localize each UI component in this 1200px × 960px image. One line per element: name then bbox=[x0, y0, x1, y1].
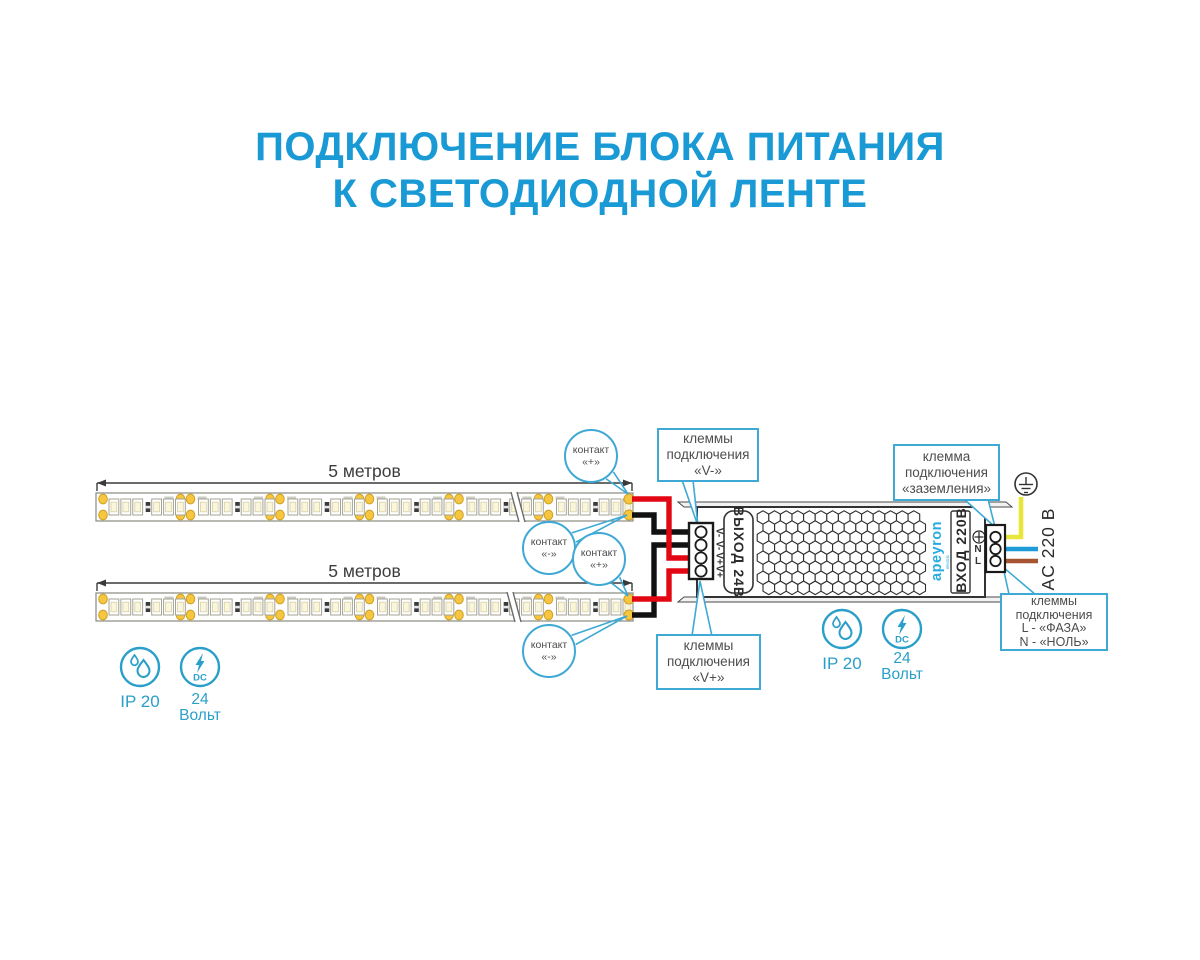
page-title-line1: ПОДКЛЮЧЕНИЕ БЛОКА ПИТАНИЯ bbox=[0, 124, 1200, 171]
led-strip-top bbox=[96, 492, 634, 522]
water-drops-icon bbox=[820, 607, 864, 651]
output-terminal-label-4: V+ bbox=[714, 559, 725, 583]
psu-output-terminals bbox=[689, 523, 713, 579]
callout-line: L - «ФАЗА» bbox=[1002, 622, 1106, 636]
callout-line: N - «НОЛЬ» bbox=[1002, 636, 1106, 650]
callout-line: подключения bbox=[1002, 609, 1106, 623]
contact-callout-text: контакт bbox=[566, 444, 616, 457]
contact-callout-sign: «-» bbox=[524, 651, 574, 664]
callout-line: подключения bbox=[659, 447, 757, 463]
water-drops-icon bbox=[118, 645, 162, 689]
dc-lightning-icon: DC bbox=[880, 607, 924, 651]
ground-callout: клемма подключения «заземления» bbox=[893, 444, 1000, 501]
psu-input-terminals bbox=[986, 525, 1005, 572]
vplus-callout: клеммы подключения «V+» bbox=[656, 634, 761, 690]
psu-output-label: ВЫХОД 24В bbox=[730, 497, 748, 607]
vminus-callout: клеммы подключения «V-» bbox=[657, 428, 759, 482]
contact-callout-minus-bottom: контакт «-» bbox=[522, 624, 576, 678]
dc24-label-psu-2: Вольт bbox=[874, 667, 930, 683]
contact-callout-plus-top: контакт «+» bbox=[564, 429, 618, 483]
brand-logo: apeyron bbox=[929, 506, 945, 596]
callout-line: подключения bbox=[658, 654, 759, 670]
contact-callout-sign: «+» bbox=[566, 456, 616, 469]
ac-voltage-label: AC 220 В bbox=[1038, 499, 1058, 599]
input-terminal-label-l: L bbox=[971, 556, 985, 567]
callout-line: подключения bbox=[895, 465, 998, 481]
ip20-label-psu: IP 20 bbox=[808, 654, 876, 674]
strip-length-label-top: 5 метров bbox=[96, 461, 633, 482]
dc-lightning-icon: DC bbox=[178, 645, 222, 689]
dc24-label-psu-1: 24 bbox=[880, 651, 924, 667]
dc24-label-left-1: 24 bbox=[178, 692, 222, 708]
page-title: ПОДКЛЮЧЕНИЕ БЛОКА ПИТАНИЯ К СВЕТОДИОДНОЙ… bbox=[0, 124, 1200, 218]
contact-callout-sign: «-» bbox=[524, 548, 574, 561]
callout-line: клеммы bbox=[659, 431, 757, 447]
brand-logo-sub: electric bbox=[945, 542, 951, 582]
psu-input-label: ВХОД 220В bbox=[952, 495, 970, 605]
mains-callout: клеммы подключения L - «ФАЗА» N - «НОЛЬ» bbox=[1000, 593, 1108, 651]
ip20-label-left: IP 20 bbox=[106, 692, 174, 712]
contact-callout-sign: «+» bbox=[574, 559, 624, 572]
psu-earth-mark bbox=[973, 531, 985, 543]
callout-line: «заземления» bbox=[895, 481, 998, 497]
callout-line: «V+» bbox=[658, 670, 759, 686]
contact-callout-minus-top: контакт «-» bbox=[522, 521, 576, 575]
callout-line: «V-» bbox=[659, 463, 757, 479]
psu-hex-grill bbox=[757, 511, 925, 595]
dc-icon-text: DC bbox=[895, 635, 909, 646]
led-strip-bottom bbox=[96, 592, 634, 622]
dc-icon-text: DC bbox=[193, 673, 207, 684]
input-terminal-label-n: N bbox=[971, 544, 985, 555]
contact-callout-text: контакт bbox=[524, 639, 574, 652]
contact-callout-plus-bottom: контакт «+» bbox=[572, 532, 626, 586]
page-title-line2: К СВЕТОДИОДНОЙ ЛЕНТЕ bbox=[0, 171, 1200, 218]
ground-symbol bbox=[1015, 473, 1037, 495]
wiring-diagram-page: ПОДКЛЮЧЕНИЕ БЛОКА ПИТАНИЯ К СВЕТОДИОДНОЙ… bbox=[0, 0, 1200, 960]
contact-callout-text: контакт bbox=[574, 547, 624, 560]
callout-line: клемма bbox=[895, 449, 998, 465]
contact-callout-text: контакт bbox=[524, 536, 574, 549]
dc24-label-left-2: Вольт bbox=[172, 708, 228, 724]
callout-line: клеммы bbox=[658, 638, 759, 654]
